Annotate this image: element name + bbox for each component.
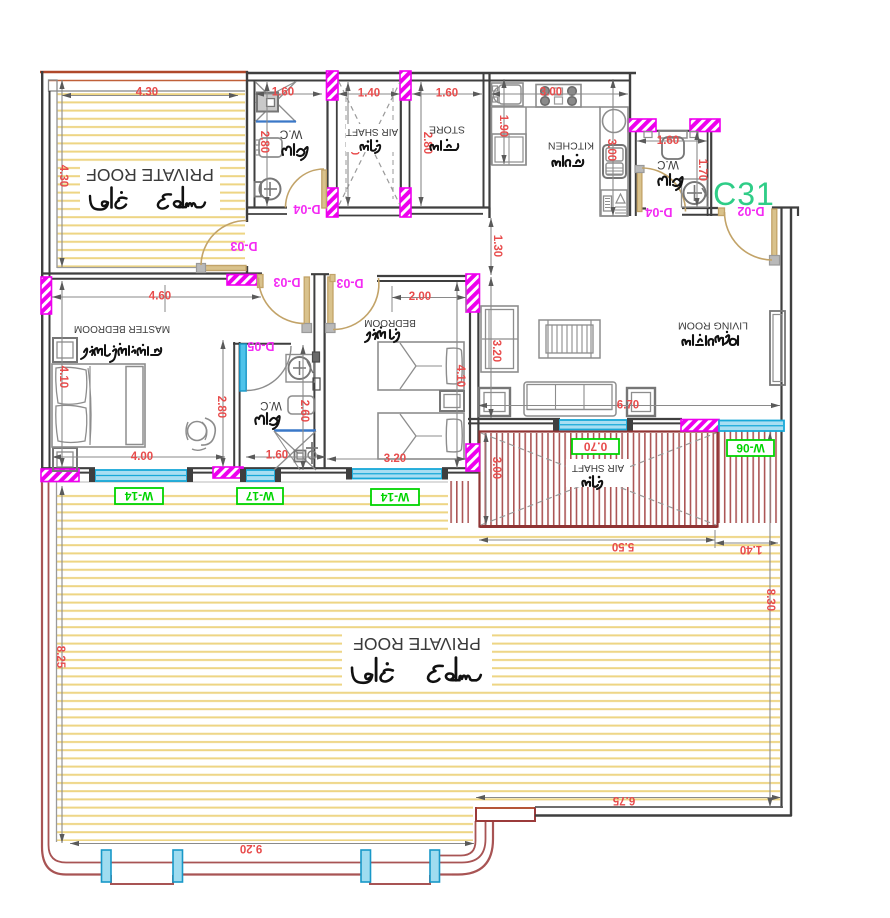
svg-text:3.00: 3.00 xyxy=(490,457,502,479)
svg-text:D-04: D-04 xyxy=(645,205,672,219)
svg-text:3.00: 3.00 xyxy=(540,87,562,99)
svg-text:W.C: W.C xyxy=(657,158,679,170)
svg-text:BEDROOM: BEDROOM xyxy=(364,317,416,328)
svg-text:PRIVATE ROOF: PRIVATE ROOF xyxy=(353,634,481,654)
svg-text:8.25: 8.25 xyxy=(54,646,66,669)
svg-text:4.00: 4.00 xyxy=(131,451,153,463)
svg-text:8.30: 8.30 xyxy=(764,589,776,611)
svg-text:C31: C31 xyxy=(713,176,775,212)
svg-text:2.80: 2.80 xyxy=(215,396,227,418)
svg-text:0.70: 0.70 xyxy=(583,440,607,454)
svg-text:MASTER BEDROOM: MASTER BEDROOM xyxy=(74,323,170,334)
svg-text:D-03: D-03 xyxy=(336,276,363,290)
svg-text:2.80: 2.80 xyxy=(258,131,270,153)
svg-text:3.00: 3.00 xyxy=(605,139,617,161)
svg-text:5.50: 5.50 xyxy=(612,540,634,552)
svg-text:4.30: 4.30 xyxy=(136,87,158,99)
svg-text:3.20: 3.20 xyxy=(384,453,406,465)
svg-text:4.60: 4.60 xyxy=(149,291,171,303)
svg-text:W.C: W.C xyxy=(260,399,282,411)
svg-text:4.30: 4.30 xyxy=(57,165,69,187)
svg-text:2.60: 2.60 xyxy=(298,400,310,422)
svg-text:6.70: 6.70 xyxy=(617,400,639,412)
svg-text:D-03: D-03 xyxy=(230,239,257,253)
svg-text:1.60: 1.60 xyxy=(436,88,458,100)
svg-text:1.40: 1.40 xyxy=(740,543,762,555)
svg-text:1.30: 1.30 xyxy=(491,235,503,257)
svg-text:1.60: 1.60 xyxy=(266,450,288,462)
svg-text:1.40: 1.40 xyxy=(358,88,380,100)
svg-text:AIR SHAFT: AIR SHAFT xyxy=(346,126,398,137)
svg-text:D-05: D-05 xyxy=(247,339,274,353)
svg-text:PRIVATE ROOF: PRIVATE ROOF xyxy=(86,165,214,185)
svg-text:4.10: 4.10 xyxy=(454,365,466,387)
svg-text:W-17: W-17 xyxy=(245,489,274,503)
svg-text:LIVING ROOM: LIVING ROOM xyxy=(678,320,748,332)
svg-text:KITCHEN: KITCHEN xyxy=(548,140,594,152)
svg-text:3.20: 3.20 xyxy=(490,340,502,362)
svg-text:W-14: W-14 xyxy=(124,489,153,503)
svg-text:9.20: 9.20 xyxy=(240,842,262,854)
svg-text:W-14: W-14 xyxy=(380,490,409,504)
svg-text:W.C: W.C xyxy=(279,128,302,142)
svg-text:AIR SHAFT: AIR SHAFT xyxy=(572,462,624,473)
svg-text:4.10: 4.10 xyxy=(57,366,69,388)
svg-text:D-04: D-04 xyxy=(293,202,320,216)
svg-text:W-06: W-06 xyxy=(736,441,765,455)
svg-text:1.60: 1.60 xyxy=(272,87,294,99)
svg-text:1.60: 1.60 xyxy=(657,135,679,147)
svg-text:1.70: 1.70 xyxy=(696,159,708,181)
svg-text:1.90: 1.90 xyxy=(497,115,509,137)
svg-text:6.75: 6.75 xyxy=(612,794,635,806)
svg-text:D-03: D-03 xyxy=(273,275,300,289)
svg-text:2.00: 2.00 xyxy=(409,291,431,303)
svg-text:STORE: STORE xyxy=(429,124,465,136)
